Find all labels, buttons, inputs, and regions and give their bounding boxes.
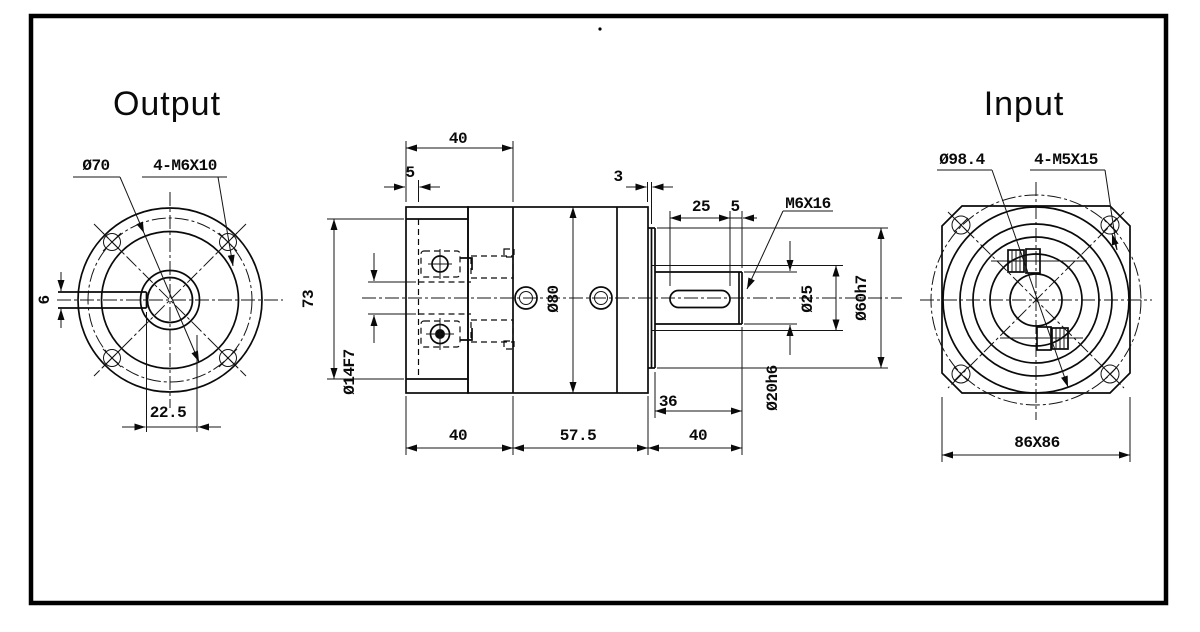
side-clamp-screws — [426, 249, 454, 350]
output-face-view: Output Ø70 4-M6X10 6 22.5 — [36, 85, 283, 432]
output-title: Output — [113, 85, 221, 123]
side-bodydia-label: Ø80 — [545, 285, 563, 312]
input-bolt-circle-label: Ø98.4 — [939, 151, 985, 169]
output-holes-label: 4-M6X10 — [153, 157, 217, 175]
side-hidden-coupling — [419, 219, 515, 379]
side-front40-label: 40 — [449, 427, 467, 445]
input-face-view: Input Ø98.4 4-M5X15 86X86 — [920, 85, 1152, 462]
side-outline — [406, 207, 742, 393]
side-shaft40-label: 40 — [689, 427, 707, 445]
input-title: Input — [984, 85, 1065, 123]
input-centerlines — [920, 182, 1152, 420]
side-inputbore-label: Ø14F7 — [341, 349, 359, 395]
side-keywaylen-label: 25 — [692, 198, 710, 216]
side-shaftdia-label: Ø20h6 — [764, 365, 782, 411]
side-pilotdia-label: Ø60h7 — [853, 275, 871, 321]
side-spacer-label: 3 — [613, 168, 622, 186]
side-pilotdepth-label: 5 — [405, 164, 414, 182]
sheet-mark-dot — [598, 27, 601, 30]
input-holes-label: 4-M5X15 — [1034, 151, 1098, 169]
output-keywidth-label: 6 — [36, 295, 54, 304]
output-leaders — [73, 177, 233, 362]
output-centerlines — [57, 192, 283, 408]
side-flangeheight-label: 73 — [300, 290, 318, 308]
side-section-view: 40 5 3 25 5 M6X16 73 Ø14F7 Ø80 Ø25 Ø60h7… — [300, 130, 902, 455]
input-flange-size-label: 86X86 — [1014, 434, 1060, 452]
side-keygap-label: 5 — [730, 198, 739, 216]
output-bolt-circle-label: Ø70 — [82, 157, 109, 175]
side-mid575-label: 57.5 — [560, 427, 596, 445]
engineering-drawing-page: Output Ø70 4-M6X10 6 22.5 — [0, 0, 1200, 632]
side-hub36-label: 36 — [659, 393, 677, 411]
gearbox-drawing-canvas: Output Ø70 4-M6X10 6 22.5 — [0, 0, 1200, 632]
side-endtap-label: M6X16 — [785, 195, 831, 213]
output-keyoffset-label: 22.5 — [150, 404, 186, 422]
side-top40-label: 40 — [449, 130, 467, 148]
side-shoulderdia-label: Ø25 — [799, 285, 817, 312]
